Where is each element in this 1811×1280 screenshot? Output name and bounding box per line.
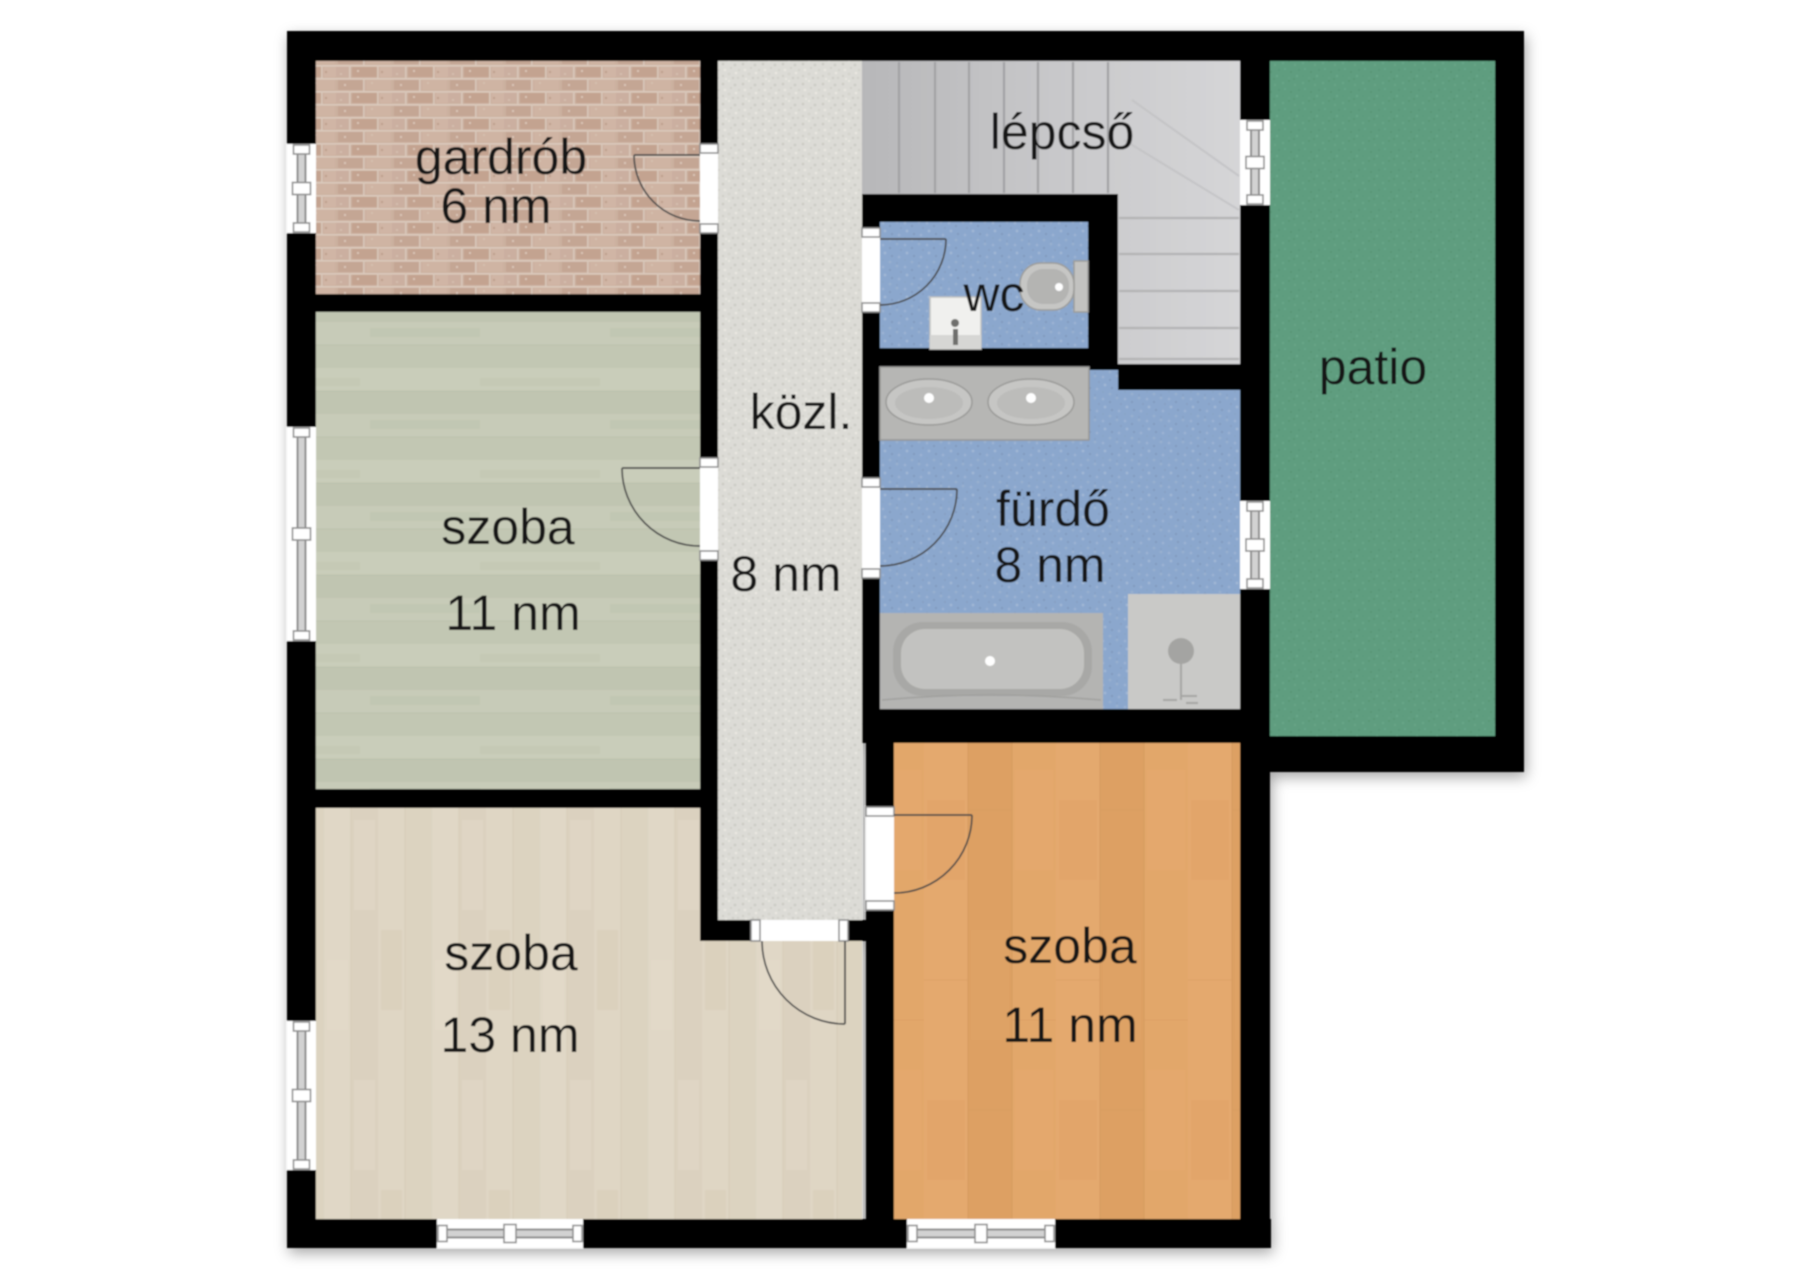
svg-text:fürdő: fürdő	[996, 481, 1110, 537]
svg-text:11 nm: 11 nm	[1002, 997, 1137, 1053]
svg-text:szoba: szoba	[444, 925, 578, 981]
svg-text:lépcső: lépcső	[990, 104, 1135, 160]
svg-text:13 nm: 13 nm	[441, 1007, 580, 1063]
svg-text:szoba: szoba	[1003, 918, 1137, 974]
svg-text:6 nm: 6 nm	[440, 178, 551, 234]
svg-text:gardrób: gardrób	[415, 129, 587, 185]
svg-text:patio: patio	[1319, 339, 1427, 395]
svg-text:szoba: szoba	[441, 499, 575, 555]
svg-text:11 nm: 11 nm	[445, 585, 580, 641]
svg-text:közl.: közl.	[750, 384, 853, 440]
svg-text:8 nm: 8 nm	[994, 537, 1105, 593]
svg-text:8 nm: 8 nm	[730, 546, 841, 602]
svg-text:wc: wc	[962, 266, 1024, 322]
